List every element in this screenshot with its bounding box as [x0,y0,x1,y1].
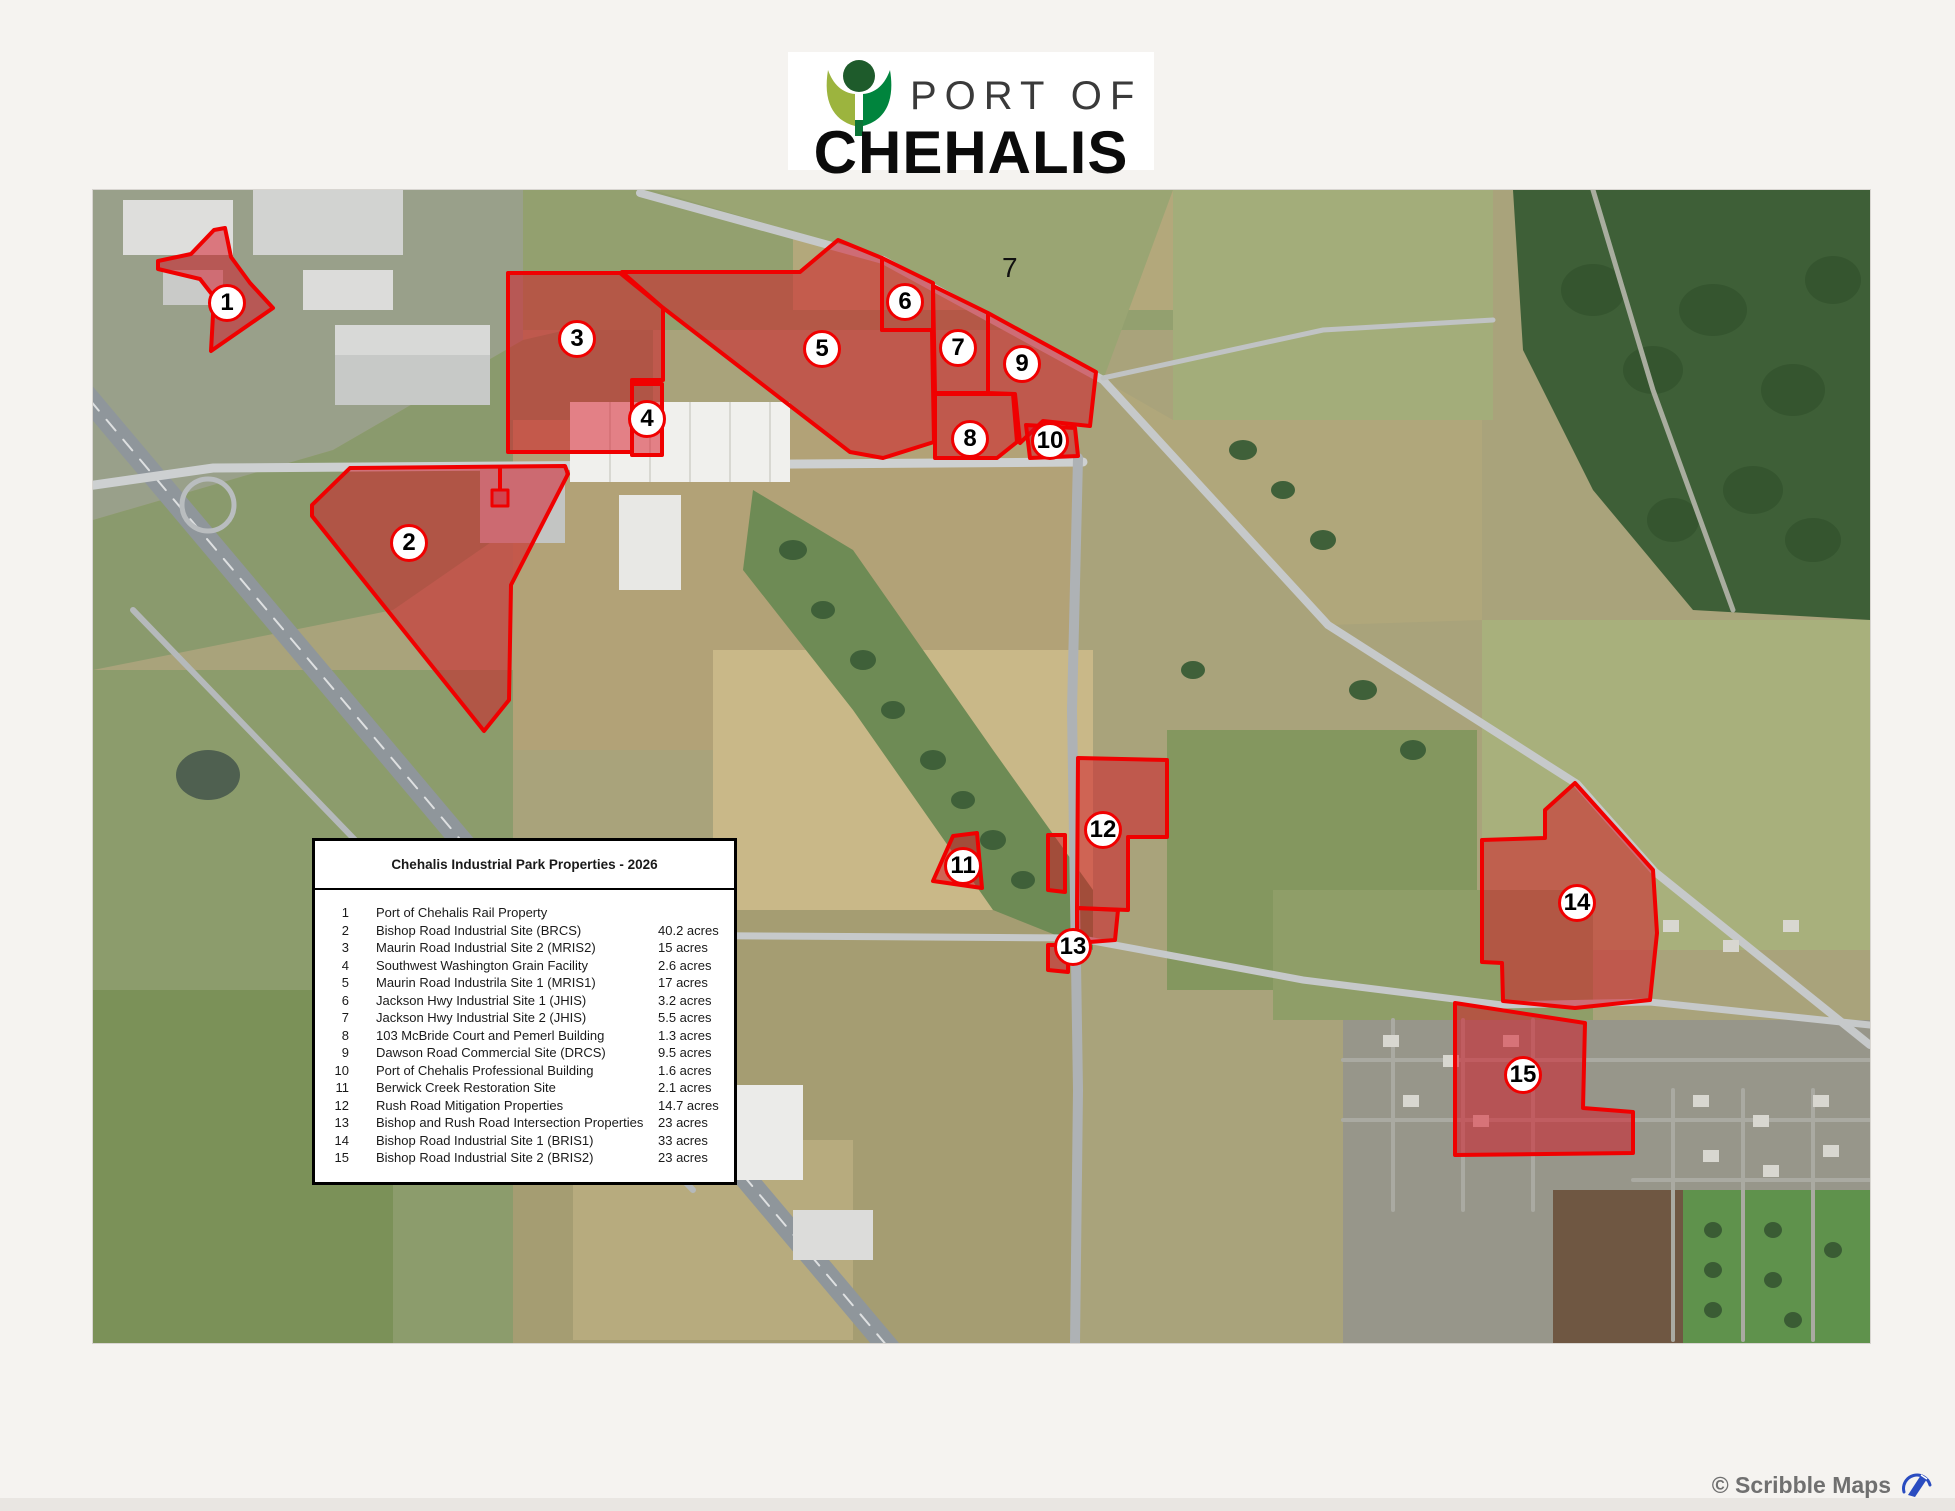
property-marker-3[interactable]: 3 [558,320,596,358]
attribution-text: © Scribble Maps [1712,1472,1891,1499]
marker-label: 10 [1037,427,1064,455]
legend-row-number: 1 [319,905,349,920]
legend-row-acres: 9.5 acres [658,1045,711,1060]
property-polygon-12-strip[interactable] [1048,835,1065,892]
legend-row: 11 Berwick Creek Restoration Site 2.1 ac… [315,1080,734,1098]
scribble-maps-pen-icon [1899,1468,1933,1502]
logo-name-text: CHEHALIS [788,118,1154,187]
legend-title: Chehalis Industrial Park Properties - 20… [315,841,734,890]
legend-row: 10 Port of Chehalis Professional Buildin… [315,1063,734,1081]
legend-row-number: 13 [319,1115,349,1130]
property-marker-10[interactable]: 10 [1031,422,1069,460]
legend-row-number: 8 [319,1028,349,1043]
property-marker-11[interactable]: 11 [944,847,982,885]
legend-row-number: 14 [319,1133,349,1148]
marker-label: 15 [1510,1061,1537,1089]
legend-row-name: Dawson Road Commercial Site (DRCS) [376,1045,606,1060]
legend-row-name: Bishop Road Industrial Site 2 (BRIS2) [376,1150,594,1165]
property-marker-8[interactable]: 8 [951,420,989,458]
legend-row-acres: 5.5 acres [658,1010,711,1025]
marker-label: 12 [1090,816,1117,844]
legend-row-name: Jackson Hwy Industrial Site 2 (JHIS) [376,1010,586,1025]
legend-row-acres: 2.1 acres [658,1080,711,1095]
map-attribution: © Scribble Maps [1712,1468,1933,1502]
marker-label: 8 [963,425,976,453]
marker-label: 7 [951,334,964,362]
legend-row: 8 103 McBride Court and Pemerl Building … [315,1028,734,1046]
property-marker-1[interactable]: 1 [208,284,246,322]
logo-top-text: PORT OF [910,74,1142,119]
legend-row-name: Port of Chehalis Professional Building [376,1063,594,1078]
legend-row-name: Jackson Hwy Industrial Site 1 (JHIS) [376,993,586,1008]
legend-row: 4 Southwest Washington Grain Facility 2.… [315,958,734,976]
legend-row-acres: 23 acres [658,1150,708,1165]
property-2-utility-pad [492,490,508,506]
legend-row-name: Maurin Road Industrila Site 1 (MRIS1) [376,975,596,990]
legend-row: 1 Port of Chehalis Rail Property [315,905,734,923]
marker-label: 2 [402,529,415,557]
legend-row-number: 7 [319,1010,349,1025]
legend-row: 9 Dawson Road Commercial Site (DRCS) 9.5… [315,1045,734,1063]
legend-panel: Chehalis Industrial Park Properties - 20… [312,838,737,1185]
legend-row-number: 9 [319,1045,349,1060]
legend-row-number: 11 [319,1080,349,1095]
legend-row-acres: 1.3 acres [658,1028,711,1043]
legend-row-acres: 40.2 acres [658,923,719,938]
legend-row: 13 Bishop and Rush Road Intersection Pro… [315,1115,734,1133]
property-marker-12[interactable]: 12 [1084,811,1122,849]
property-marker-5[interactable]: 5 [803,330,841,368]
legend-row-name: 103 McBride Court and Pemerl Building [376,1028,604,1043]
legend-row: 15 Bishop Road Industrial Site 2 (BRIS2)… [315,1150,734,1168]
legend-row-name: Port of Chehalis Rail Property [376,905,547,920]
port-of-chehalis-logo: PORT OF CHEHALIS [788,52,1154,170]
property-marker-13[interactable]: 13 [1054,928,1092,966]
legend-row-name: Bishop Road Industrial Site 1 (BRIS1) [376,1133,594,1148]
legend-row-name: Bishop and Rush Road Intersection Proper… [376,1115,643,1130]
legend-row-name: Bishop Road Industrial Site (BRCS) [376,923,581,938]
property-marker-4[interactable]: 4 [628,400,666,438]
legend-row-number: 12 [319,1098,349,1113]
legend-row-name: Maurin Road Industrial Site 2 (MRIS2) [376,940,596,955]
legend-row-acres: 3.2 acres [658,993,711,1008]
legend-row-name: Berwick Creek Restoration Site [376,1080,556,1095]
marker-label: 11 [950,852,975,880]
legend-row-number: 10 [319,1063,349,1078]
legend-row-name: Southwest Washington Grain Facility [376,958,588,973]
marker-label: 9 [1015,350,1028,378]
legend-row-number: 4 [319,958,349,973]
marker-label: 1 [220,289,233,317]
property-marker-14[interactable]: 14 [1558,884,1596,922]
logo-layout: PORT OF CHEHALIS [788,52,1154,170]
legend-row-acres: 17 acres [658,975,708,990]
property-marker-7[interactable]: 7 [939,329,977,367]
legend-row-acres: 33 acres [658,1133,708,1148]
legend-row: 7 Jackson Hwy Industrial Site 2 (JHIS) 5… [315,1010,734,1028]
legend-row: 3 Maurin Road Industrial Site 2 (MRIS2) … [315,940,734,958]
marker-label: 4 [640,405,653,433]
legend-row: 5 Maurin Road Industrila Site 1 (MRIS1) … [315,975,734,993]
legend-row: 12 Rush Road Mitigation Properties 14.7 … [315,1098,734,1116]
legend-row-number: 2 [319,923,349,938]
bottom-band [0,1498,1955,1511]
legend-row-number: 5 [319,975,349,990]
legend-row-number: 15 [319,1150,349,1165]
legend-row-acres: 23 acres [658,1115,708,1130]
marker-label: 5 [815,335,828,363]
legend-row-acres: 15 acres [658,940,708,955]
page: { "logo": { "top_text": "PORT OF", "name… [0,0,1955,1511]
legend-row: 2 Bishop Road Industrial Site (BRCS) 40.… [315,923,734,941]
legend-row: 6 Jackson Hwy Industrial Site 1 (JHIS) 3… [315,993,734,1011]
legend-row-acres: 2.6 acres [658,958,711,973]
legend-row-number: 3 [319,940,349,955]
marker-label: 14 [1564,889,1591,917]
legend-rows: 1 Port of Chehalis Rail Property 2 Bisho… [315,905,734,1168]
property-marker-15[interactable]: 15 [1504,1056,1542,1094]
stray-number-label: 7 [1002,252,1018,284]
legend-row-number: 6 [319,993,349,1008]
legend-row-acres: 1.6 acres [658,1063,711,1078]
legend-row: 14 Bishop Road Industrial Site 1 (BRIS1)… [315,1133,734,1151]
legend-row-acres: 14.7 acres [658,1098,719,1113]
property-marker-6[interactable]: 6 [886,283,924,321]
property-marker-9[interactable]: 9 [1003,345,1041,383]
property-marker-2[interactable]: 2 [390,524,428,562]
marker-label: 13 [1060,933,1087,961]
legend-row-name: Rush Road Mitigation Properties [376,1098,563,1113]
marker-label: 3 [570,325,583,353]
marker-label: 6 [898,288,911,316]
